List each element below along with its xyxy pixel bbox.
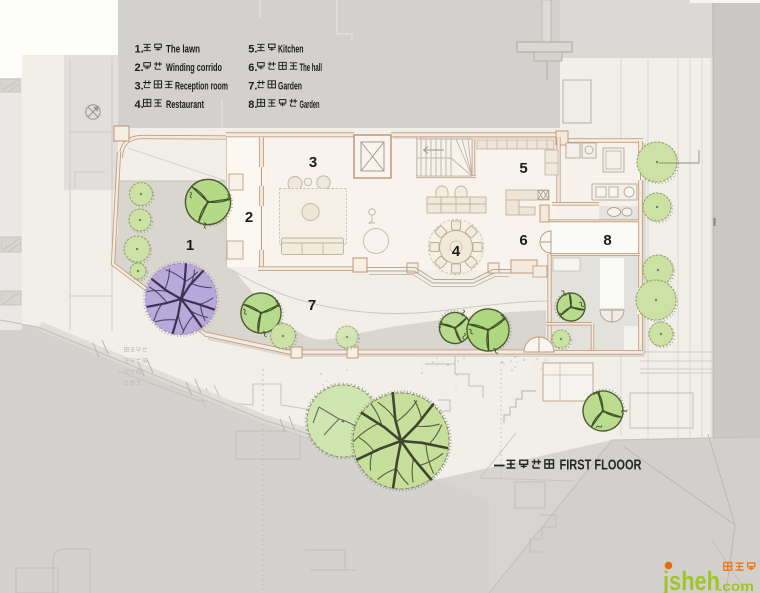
svg-text:Garden: Garden	[278, 81, 302, 93]
svg-text:7: 7	[308, 297, 316, 314]
svg-text:8: 8	[603, 232, 611, 249]
svg-text:Kitchen: Kitchen	[278, 44, 304, 56]
svg-text:5: 5	[519, 160, 527, 177]
svg-text:5.: 5.	[248, 44, 257, 56]
svg-text:The hall: The hall	[300, 62, 323, 74]
svg-text:Reception room: Reception room	[175, 81, 228, 93]
svg-text:3.: 3.	[135, 81, 144, 93]
svg-text:4.: 4.	[135, 99, 144, 111]
svg-text:The lawn: The lawn	[166, 44, 200, 56]
svg-text:1.: 1.	[135, 44, 144, 56]
svg-text:8.: 8.	[248, 99, 257, 111]
svg-text:3: 3	[309, 154, 317, 171]
svg-text:1: 1	[186, 237, 194, 254]
svg-text:Winding corrido: Winding corrido	[166, 62, 222, 74]
svg-text:FIRST FLOOOR: FIRST FLOOOR	[560, 457, 642, 474]
svg-text:2.: 2.	[135, 62, 144, 74]
svg-text:6: 6	[519, 232, 527, 249]
svg-text:7.: 7.	[248, 81, 257, 93]
svg-text:2: 2	[245, 209, 253, 226]
svg-text:6.: 6.	[248, 62, 257, 74]
svg-text:Garden: Garden	[300, 99, 320, 111]
svg-text:Restaurant: Restaurant	[166, 99, 204, 111]
svg-text:.com: .com	[718, 579, 754, 593]
svg-text:jsheh: jsheh	[662, 566, 720, 593]
svg-text:4: 4	[452, 243, 461, 260]
